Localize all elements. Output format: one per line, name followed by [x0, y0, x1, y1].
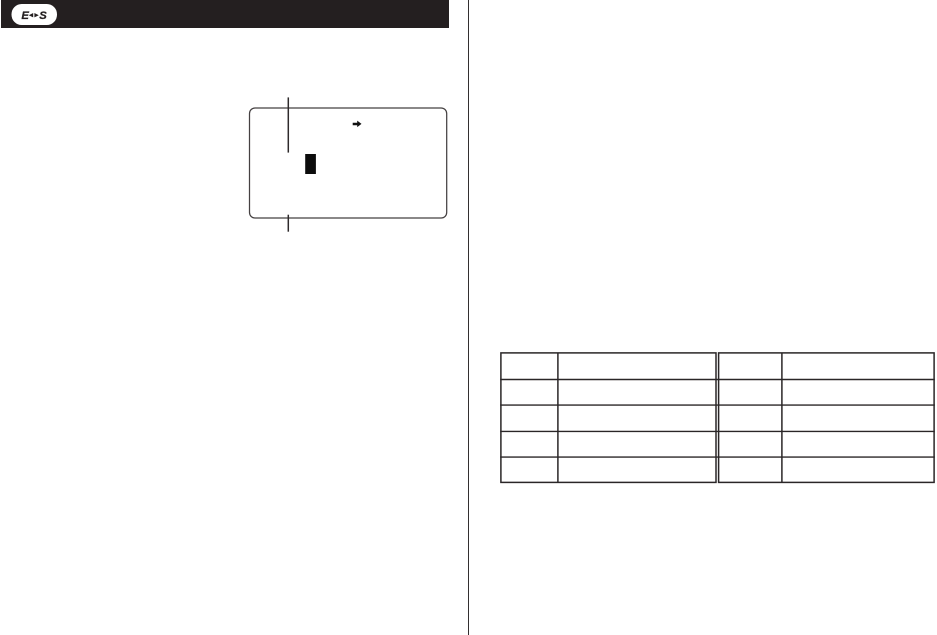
svg-text:E: E — [21, 10, 29, 22]
svg-text:S: S — [39, 10, 47, 22]
